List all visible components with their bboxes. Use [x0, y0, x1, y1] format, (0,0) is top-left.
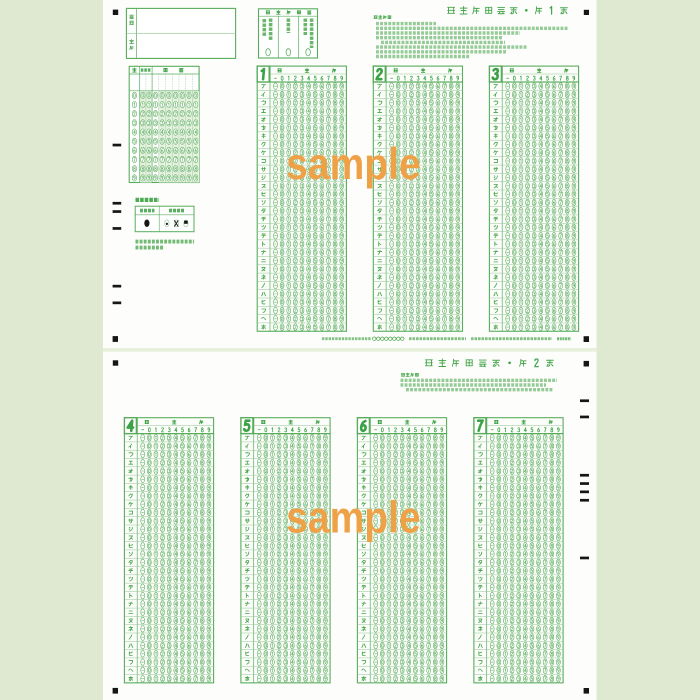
svg-text:sample: sample — [286, 492, 420, 542]
svg-text:sample: sample — [286, 139, 420, 189]
